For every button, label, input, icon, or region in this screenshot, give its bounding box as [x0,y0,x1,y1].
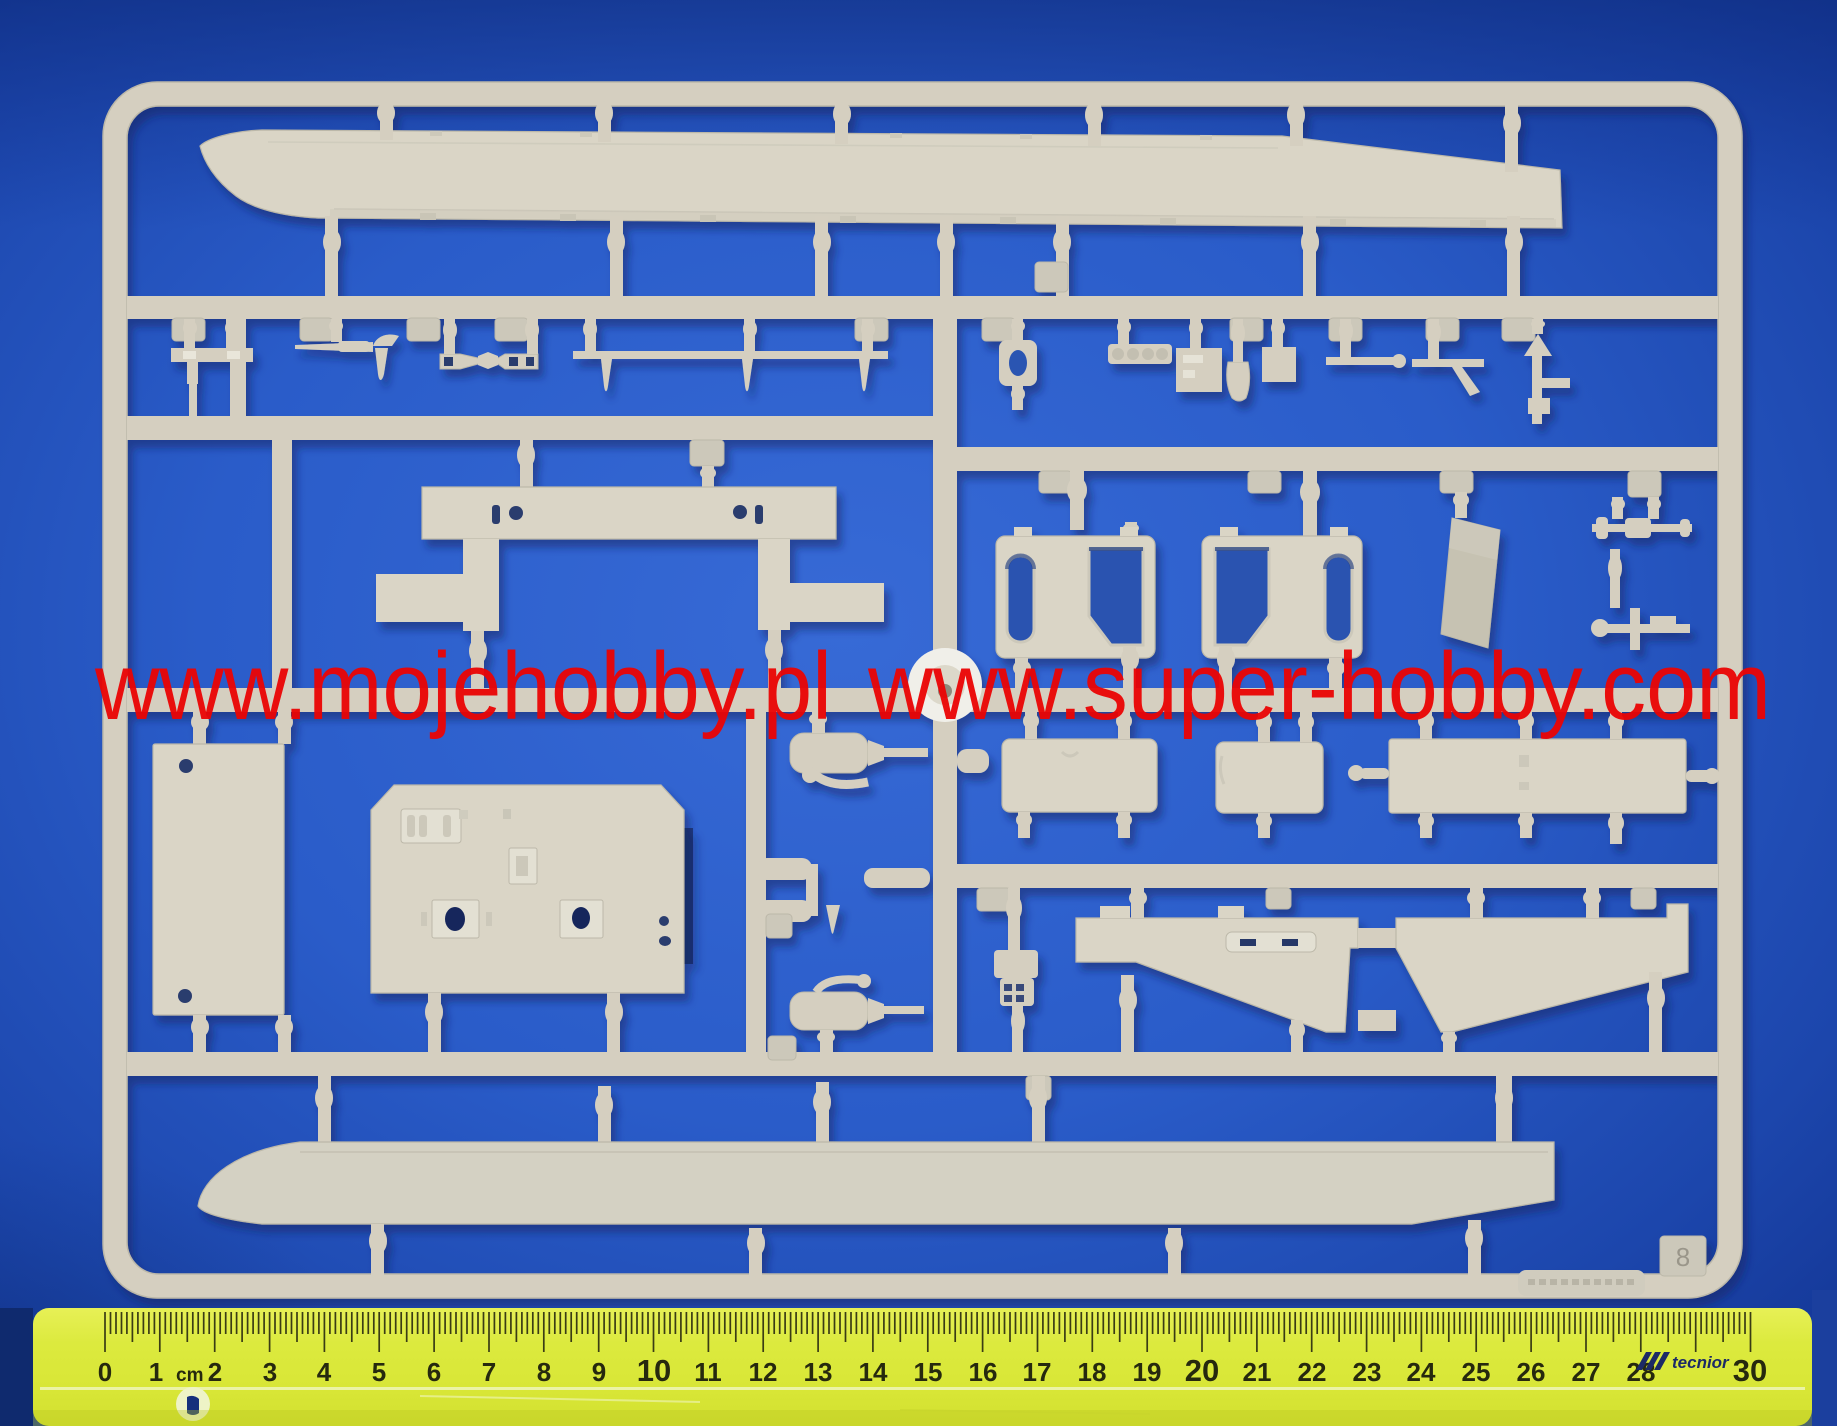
svg-text:22: 22 [1298,1357,1327,1387]
svg-text:19: 19 [1133,1357,1162,1387]
svg-text:10: 10 [637,1353,671,1388]
svg-text:21: 21 [1243,1357,1272,1387]
svg-text:12: 12 [749,1357,778,1387]
svg-text:24: 24 [1407,1357,1436,1387]
svg-text:tecnior: tecnior [1672,1353,1730,1372]
svg-text:16: 16 [969,1357,998,1387]
svg-text:11: 11 [694,1357,722,1387]
svg-text:0: 0 [98,1357,112,1387]
svg-text:1: 1 [149,1357,163,1387]
svg-text:23: 23 [1353,1357,1382,1387]
svg-text:8: 8 [1676,1242,1690,1272]
svg-text:cm: cm [176,1365,203,1386]
svg-text:20: 20 [1185,1353,1219,1388]
svg-text:3: 3 [263,1357,277,1387]
svg-text:8: 8 [537,1357,551,1387]
svg-text:14: 14 [859,1357,888,1387]
svg-text:18: 18 [1078,1357,1107,1387]
svg-text:30: 30 [1733,1353,1767,1388]
svg-text:7: 7 [482,1357,496,1387]
svg-text:25: 25 [1462,1357,1491,1387]
svg-text:9: 9 [592,1357,606,1387]
svg-text:26: 26 [1517,1357,1546,1387]
svg-text:17: 17 [1023,1357,1052,1387]
svg-text:27: 27 [1572,1357,1601,1387]
svg-text:2: 2 [208,1357,222,1387]
svg-text:5: 5 [372,1357,386,1387]
svg-text:15: 15 [914,1357,943,1387]
svg-text:4: 4 [317,1357,332,1387]
svg-text:6: 6 [427,1357,441,1387]
svg-text:13: 13 [804,1357,833,1387]
svg-text:www.super-hobby.com: www.super-hobby.com [867,633,1771,740]
svg-text:www.mojehobby.pl: www.mojehobby.pl [94,633,832,740]
